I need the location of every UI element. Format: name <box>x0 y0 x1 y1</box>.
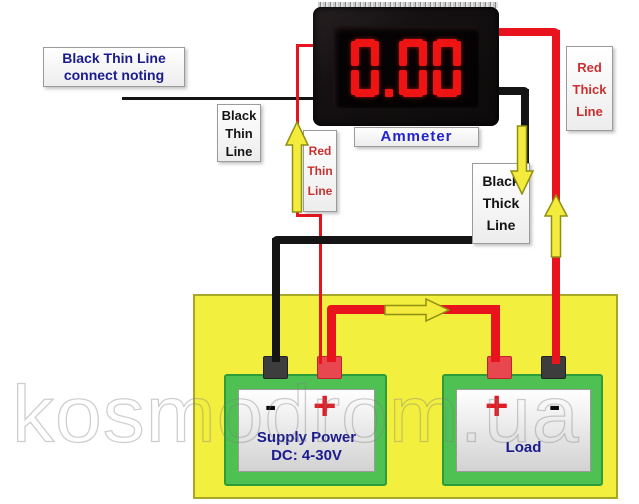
label-line: Thick <box>567 79 612 101</box>
display-segment <box>453 41 461 66</box>
supply-to-load-red-wire <box>327 309 336 362</box>
label-line: Black <box>218 107 260 125</box>
red-thick-line-label: Red Thick Line <box>566 46 613 131</box>
ammeter-label: Ammeter <box>354 127 479 147</box>
display-digit <box>433 39 461 97</box>
load-inner: + - Load <box>456 389 591 472</box>
display-segment <box>371 41 379 66</box>
load-box: + - Load <box>442 374 603 486</box>
ammeter-display <box>333 26 479 108</box>
note-line-1: Black Thin Line <box>44 50 184 67</box>
display-digit <box>351 39 379 97</box>
supply-power-voltage: DC: 4-30V <box>239 447 374 465</box>
display-segment <box>351 70 359 95</box>
label-line: Thick <box>473 192 529 214</box>
supply-power-text: Supply Power DC: 4-30V <box>239 429 374 465</box>
display-segment <box>419 41 427 66</box>
red-thick-wire <box>497 28 560 36</box>
ammeter-wiring-diagram: - + Supply Power DC: 4-30V + - Load <box>0 0 639 504</box>
display-segment <box>433 70 441 95</box>
ammeter-module <box>313 7 499 126</box>
label-line: Line <box>567 101 612 123</box>
note-line-2: connect noting <box>44 67 184 84</box>
supply-to-load-red-wire <box>491 305 500 362</box>
supply-power-box: - + Supply Power DC: 4-30V <box>224 374 387 486</box>
display-decimal-point <box>385 89 393 97</box>
supply-power-title: Supply Power <box>239 429 374 447</box>
display-segment <box>399 70 407 95</box>
display-digit <box>399 39 427 97</box>
black-thick-wire <box>272 238 280 362</box>
load-negative-symbol: - <box>549 386 560 426</box>
label-line: Line <box>473 214 529 236</box>
supply-power-inner: - + Supply Power DC: 4-30V <box>238 389 375 472</box>
label-line: Line <box>218 143 260 161</box>
note-black-thin-line-label: Black Thin Line connect noting <box>43 47 185 87</box>
black-thin-line-label: Black Thin Line <box>217 104 261 162</box>
display-segment <box>433 41 441 66</box>
black-thin-wire <box>122 97 320 100</box>
supply-positive-symbol: + <box>313 386 336 426</box>
supply-negative-symbol: - <box>265 386 276 426</box>
load-positive-symbol: + <box>485 386 508 426</box>
flow-arrow-up-icon <box>285 121 309 213</box>
flow-arrow-down-icon <box>510 125 534 195</box>
flow-arrow-up-icon <box>544 194 568 258</box>
load-title: Load <box>457 439 590 457</box>
label-line: Red <box>567 57 612 79</box>
display-segment <box>351 41 359 66</box>
label-line: Thin <box>218 125 260 143</box>
display-segment <box>399 41 407 66</box>
flow-arrow-right-icon <box>384 298 450 322</box>
